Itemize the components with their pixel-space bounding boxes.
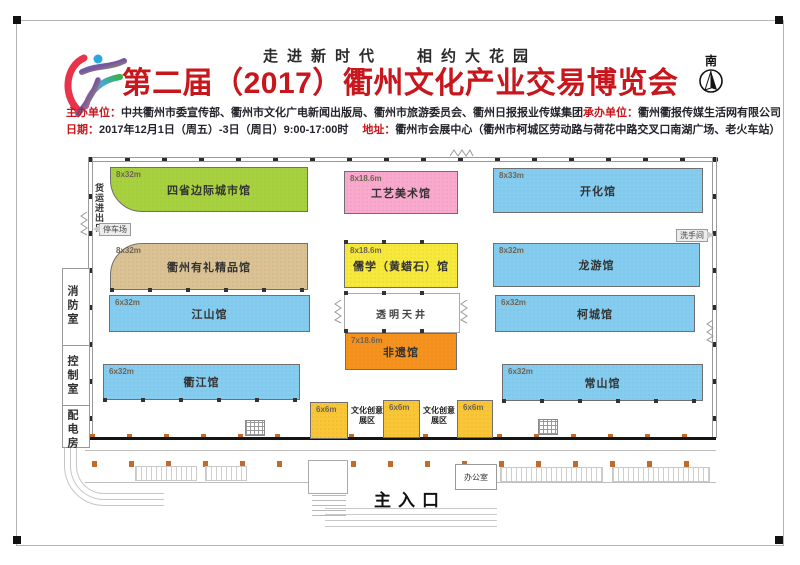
hall-size: 8x32m — [499, 246, 524, 255]
stairs-icon — [538, 419, 558, 435]
hall-size: 8x18.6m — [350, 174, 382, 183]
organizer-label: 主办单位： — [66, 107, 121, 119]
stairs-icon — [245, 420, 265, 436]
co-organizer-group: 承办单位：衢州衢报传媒生活网有限公司 — [583, 104, 781, 120]
hall-size: 6x32m — [508, 367, 533, 376]
hall-name: 非遗馆 — [383, 344, 419, 360]
walkway-steps — [205, 466, 247, 481]
hall-name: 衢江馆 — [184, 374, 220, 390]
hall-name: 柯城馆 — [577, 306, 613, 322]
block-size: 6x6m — [463, 403, 483, 412]
walkway-steps — [500, 467, 603, 482]
date-address-line: 日期：2017年12月1日（周五）-3日（周日）9:00-17:00时地址：衢州… — [66, 121, 786, 137]
restroom-tag: 洗手间 — [676, 229, 708, 242]
address-label: 地址： — [362, 124, 395, 136]
hall-size: 6x32m — [115, 298, 140, 307]
hall-name: 开化馆 — [580, 183, 616, 199]
folding-door-icon — [460, 300, 468, 324]
fire-room-label: 消防室 — [66, 285, 78, 327]
compass-south-label: 南 — [697, 54, 725, 68]
creative-block-3: 6x6m — [457, 400, 493, 438]
corner-mark — [775, 536, 783, 544]
hall-name: 工艺美术馆 — [371, 185, 431, 201]
hall-size: 6x32m — [109, 367, 134, 376]
corner-mark — [775, 16, 783, 24]
parking-tag: 停车场 — [99, 223, 131, 236]
creative-block-1: 6x6m — [310, 402, 348, 439]
promenade-line — [85, 450, 716, 451]
hall-qujiang: 6x32m 衢江馆 — [103, 364, 300, 400]
compass-icon — [698, 68, 724, 94]
corner-mark — [13, 536, 21, 544]
column-ticks — [344, 291, 458, 295]
annex-divider — [62, 405, 90, 406]
column-ticks — [110, 288, 308, 292]
co-organizer-value: 衢州衢报传媒生活网有限公司 — [638, 107, 781, 119]
block-size: 6x6m — [389, 403, 409, 412]
column-ticks — [502, 399, 703, 403]
restroom-label: 洗手间 — [680, 231, 704, 240]
creative-block-2: 6x6m — [383, 400, 420, 438]
entrance-wide-steps — [325, 508, 497, 529]
walkway-steps — [612, 467, 710, 482]
folding-door-icon — [450, 149, 474, 157]
hall-quzhou-youli-boutique: 8x32m 衢州有礼精品馆 — [110, 243, 308, 290]
hall-longyou: 8x32m 龙游馆 — [493, 243, 700, 287]
hall-kaihua: 8x33m 开化馆 — [493, 168, 703, 213]
page-title: 第二届（2017）衢州文化产业交易博览会 — [0, 58, 800, 102]
hall-intangible-heritage: 7x18.6m 非遗馆 — [345, 333, 457, 370]
folding-door-icon — [706, 320, 714, 344]
date-value: 2017年12月1日（周五）-3日（周日）9:00-17:00时 — [99, 124, 348, 136]
column-ticks — [344, 240, 458, 244]
creative-zone-label: 文化创意展区 — [421, 406, 457, 426]
hall-changshan: 6x32m 常山馆 — [502, 364, 703, 401]
promenade-edge-right — [497, 482, 716, 483]
address-value: 衢州市会展中心（衢州市柯城区劳动路与荷花中路交叉口南湖广场、老火车站） — [395, 124, 780, 136]
expo-poster: 走进新时代相约大花园 第二届（2017）衢州文化产业交易博览会 南 — [0, 0, 800, 565]
hall-name: 儒学（黄蜡石）馆 — [353, 258, 449, 274]
office-label: 办公室 — [464, 472, 488, 483]
hall-kecheng: 6x32m 柯城馆 — [495, 295, 695, 332]
block-size: 6x6m — [316, 405, 336, 414]
hall-size: 8x33m — [499, 171, 524, 180]
creative-zone-label: 文化创意展区 — [349, 406, 385, 426]
office-room: 办公室 — [455, 464, 497, 490]
folding-door-icon — [334, 300, 342, 324]
date-label: 日期： — [66, 124, 99, 136]
hall-size: 8x32m — [116, 246, 141, 255]
entrance-vestibule — [308, 460, 348, 494]
hall-confucianism-wax-stone: 8x18.6m 儒学（黄蜡石）馆 — [344, 243, 458, 288]
hall-size: 6x32m — [501, 298, 526, 307]
main-entrance-label: 主入口 — [355, 486, 465, 511]
co-organizer-label: 承办单位： — [583, 107, 638, 119]
control-room-label: 控制室 — [66, 355, 78, 397]
hall-name: 江山馆 — [192, 306, 228, 322]
hall-name: 衢州有礼精品馆 — [167, 259, 251, 275]
hall-name: 龙游馆 — [579, 257, 615, 273]
wall-right — [712, 157, 717, 438]
compass: 南 — [697, 54, 725, 99]
folding-door-icon — [80, 212, 88, 236]
walkway-arc — [76, 440, 164, 494]
address-group: 地址：衢州市会展中心（衢州市柯城区劳动路与荷花中路交叉口南湖广场、老火车站） — [362, 124, 780, 136]
annex-divider — [62, 345, 90, 346]
hall-four-province-border-cities: 8x32m 四省边际城市馆 — [110, 167, 308, 212]
organizer-line: 主办单位：中共衢州市委宣传部、衢州市文化广电新闻出版局、衢州市旅游委员会、衢州日… — [66, 104, 752, 120]
corner-mark — [13, 16, 21, 24]
hall-jiangshan: 6x32m 江山馆 — [109, 295, 310, 332]
hall-name: 常山馆 — [585, 375, 621, 391]
wall-top — [88, 157, 718, 162]
power-room-label: 配电房 — [66, 409, 78, 451]
parking-label: 停车场 — [103, 225, 127, 234]
hall-size: 8x18.6m — [350, 246, 382, 255]
hall-size: 7x18.6m — [351, 336, 383, 345]
hall-arts-crafts: 8x18.6m 工艺美术馆 — [344, 171, 458, 214]
organizer-group: 主办单位：中共衢州市委宣传部、衢州市文化广电新闻出版局、衢州市旅游委员会、衢州日… — [66, 104, 583, 120]
atrium-label: 透明天井 — [376, 306, 428, 321]
column-ticks — [344, 329, 458, 333]
hall-name: 四省边际城市馆 — [167, 182, 251, 198]
hall-size: 8x32m — [116, 170, 141, 179]
atrium-skylight: 透明天井 — [344, 293, 460, 333]
organizer-value: 中共衢州市委宣传部、衢州市文化广电新闻出版局、衢州市旅游委员会、衢州日报报业传媒… — [121, 107, 583, 119]
column-ticks — [103, 398, 300, 402]
